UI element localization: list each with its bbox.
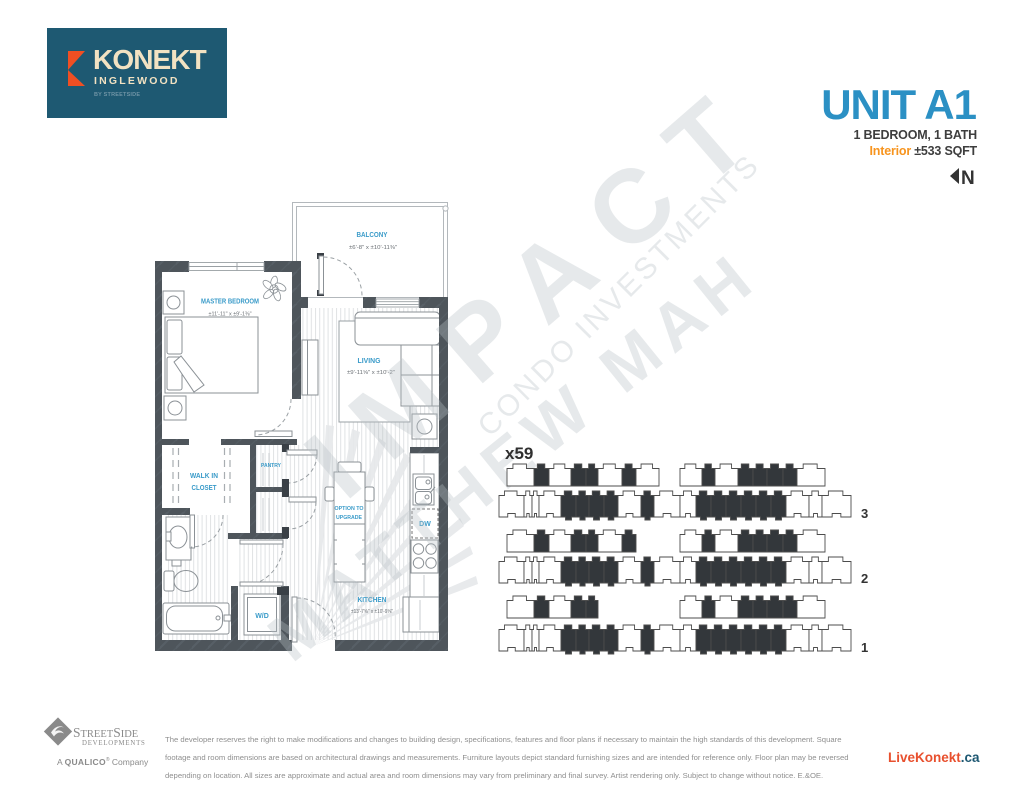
svg-text:±11'-11" x ±9'-1⅜": ±11'-11" x ±9'-1⅜" bbox=[209, 312, 252, 318]
svg-text:x59: x59 bbox=[505, 444, 533, 463]
svg-text:DEVELOPMENTS: DEVELOPMENTS bbox=[82, 740, 146, 747]
svg-text:MASTER BEDROOM: MASTER BEDROOM bbox=[201, 297, 259, 306]
svg-text:2: 2 bbox=[861, 571, 868, 586]
svg-text:BALCONY: BALCONY bbox=[357, 230, 388, 239]
svg-text:1: 1 bbox=[861, 640, 868, 655]
svg-text:3: 3 bbox=[861, 506, 868, 521]
svg-text:STREETSIDE: STREETSIDE bbox=[73, 725, 138, 740]
svg-text:WALK IN: WALK IN bbox=[190, 471, 218, 480]
svg-text:PANTRY: PANTRY bbox=[261, 463, 281, 469]
svg-text:CLOSET: CLOSET bbox=[192, 483, 217, 492]
svg-text:±6'-8" x ±10'-11⅜": ±6'-8" x ±10'-11⅜" bbox=[349, 245, 397, 251]
